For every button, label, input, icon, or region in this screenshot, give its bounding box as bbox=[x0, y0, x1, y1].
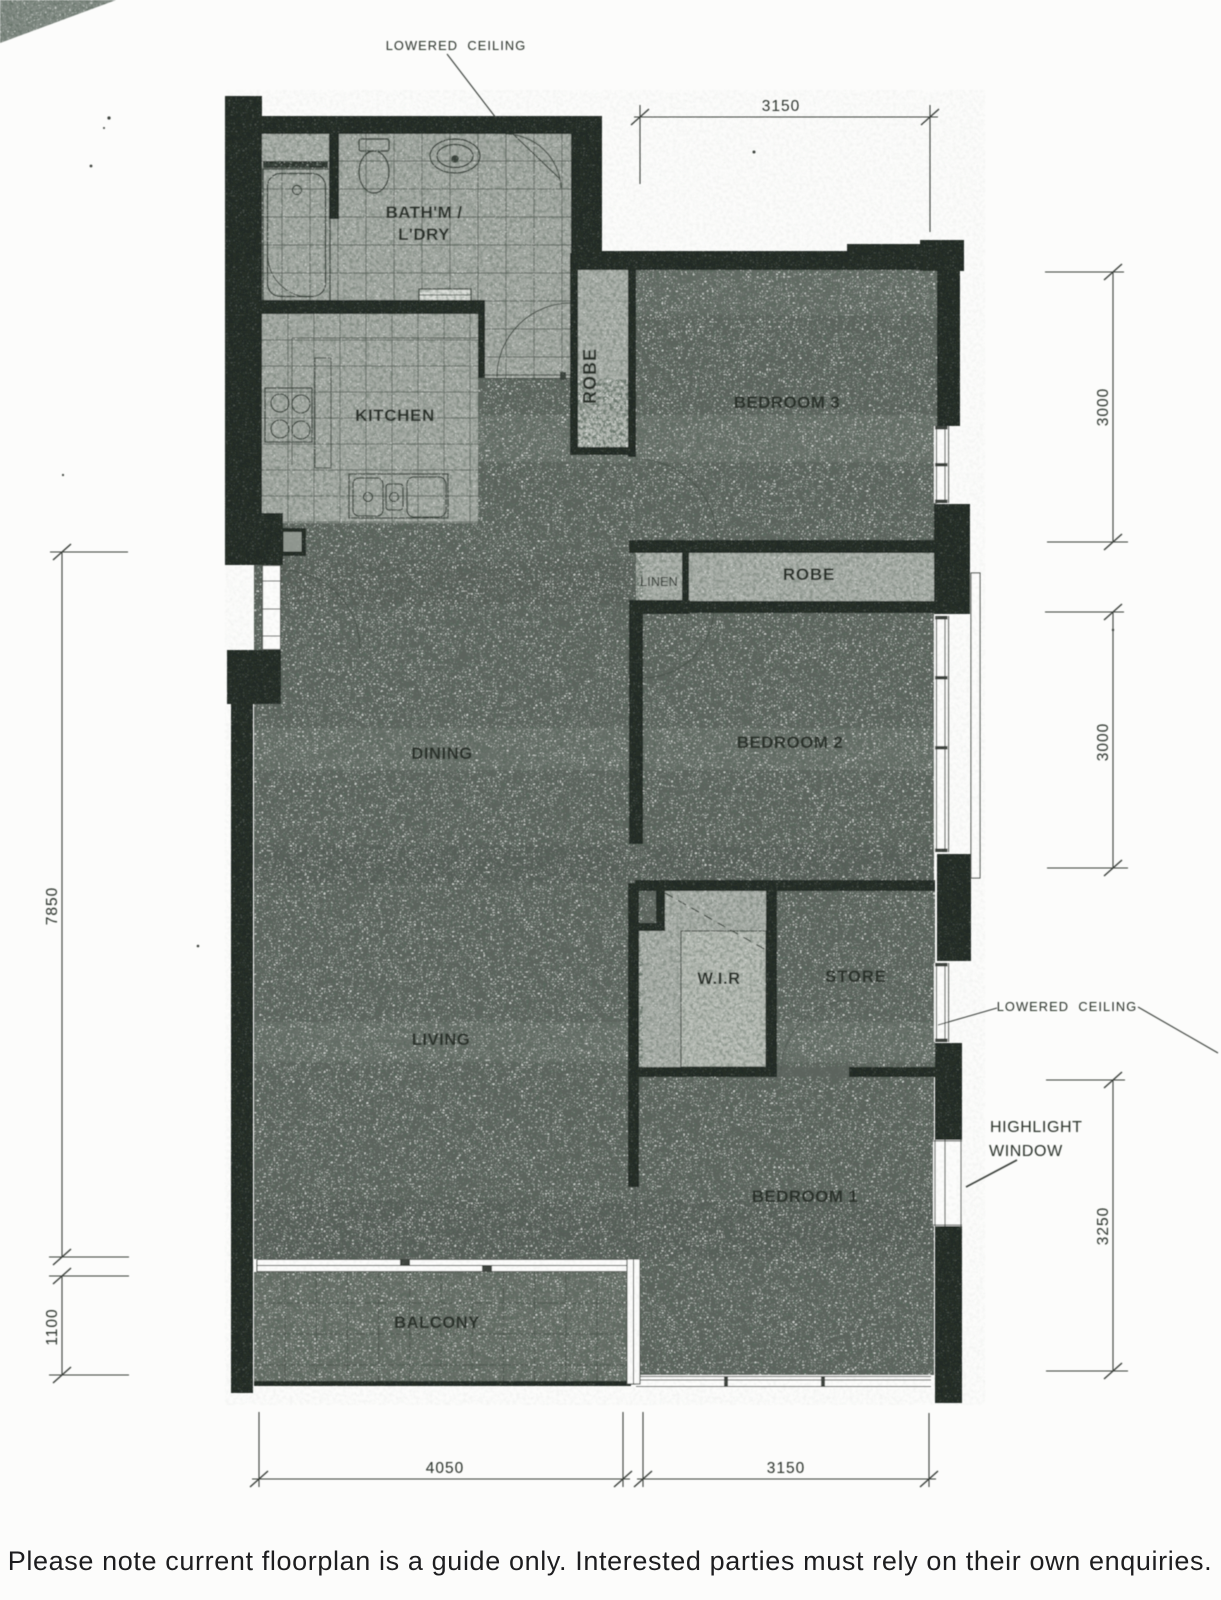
svg-text:BEDROOM 3: BEDROOM 3 bbox=[734, 393, 841, 412]
svg-text:3250: 3250 bbox=[1095, 1207, 1112, 1245]
svg-text:LINEN: LINEN bbox=[640, 575, 678, 589]
svg-text:ROBE: ROBE bbox=[580, 348, 600, 404]
svg-text:STORE: STORE bbox=[825, 968, 887, 986]
svg-text:3000: 3000 bbox=[1095, 723, 1112, 761]
svg-text:LOWERED CEILING: LOWERED CEILING bbox=[997, 999, 1138, 1014]
svg-text:HIGHLIGHT: HIGHLIGHT bbox=[990, 1119, 1083, 1136]
svg-text:3150: 3150 bbox=[767, 1460, 805, 1477]
svg-text:3000: 3000 bbox=[1095, 388, 1112, 426]
svg-text:LIVING: LIVING bbox=[412, 1031, 471, 1049]
svg-text:Please note current floorplan: Please note current floorplan is a guide… bbox=[8, 1546, 1213, 1576]
svg-text:L'DRY: L'DRY bbox=[398, 225, 450, 244]
svg-text:KITCHEN: KITCHEN bbox=[355, 406, 435, 425]
svg-text:BEDROOM 2: BEDROOM 2 bbox=[737, 733, 844, 752]
svg-text:BEDROOM 1: BEDROOM 1 bbox=[752, 1187, 859, 1206]
svg-text:LOWERED CEILING: LOWERED CEILING bbox=[386, 38, 527, 53]
svg-text:1100: 1100 bbox=[44, 1308, 61, 1345]
svg-text:WINDOW: WINDOW bbox=[989, 1143, 1063, 1160]
svg-text:7850: 7850 bbox=[44, 887, 61, 925]
svg-text:BALCONY: BALCONY bbox=[394, 1314, 480, 1332]
svg-text:W.I.R: W.I.R bbox=[697, 970, 740, 988]
svg-text:DINING: DINING bbox=[411, 745, 472, 763]
svg-text:ROBE: ROBE bbox=[783, 565, 835, 584]
svg-text:BATH'M /: BATH'M / bbox=[386, 203, 463, 222]
svg-text:3150: 3150 bbox=[762, 98, 800, 115]
svg-text:4050: 4050 bbox=[426, 1460, 464, 1477]
